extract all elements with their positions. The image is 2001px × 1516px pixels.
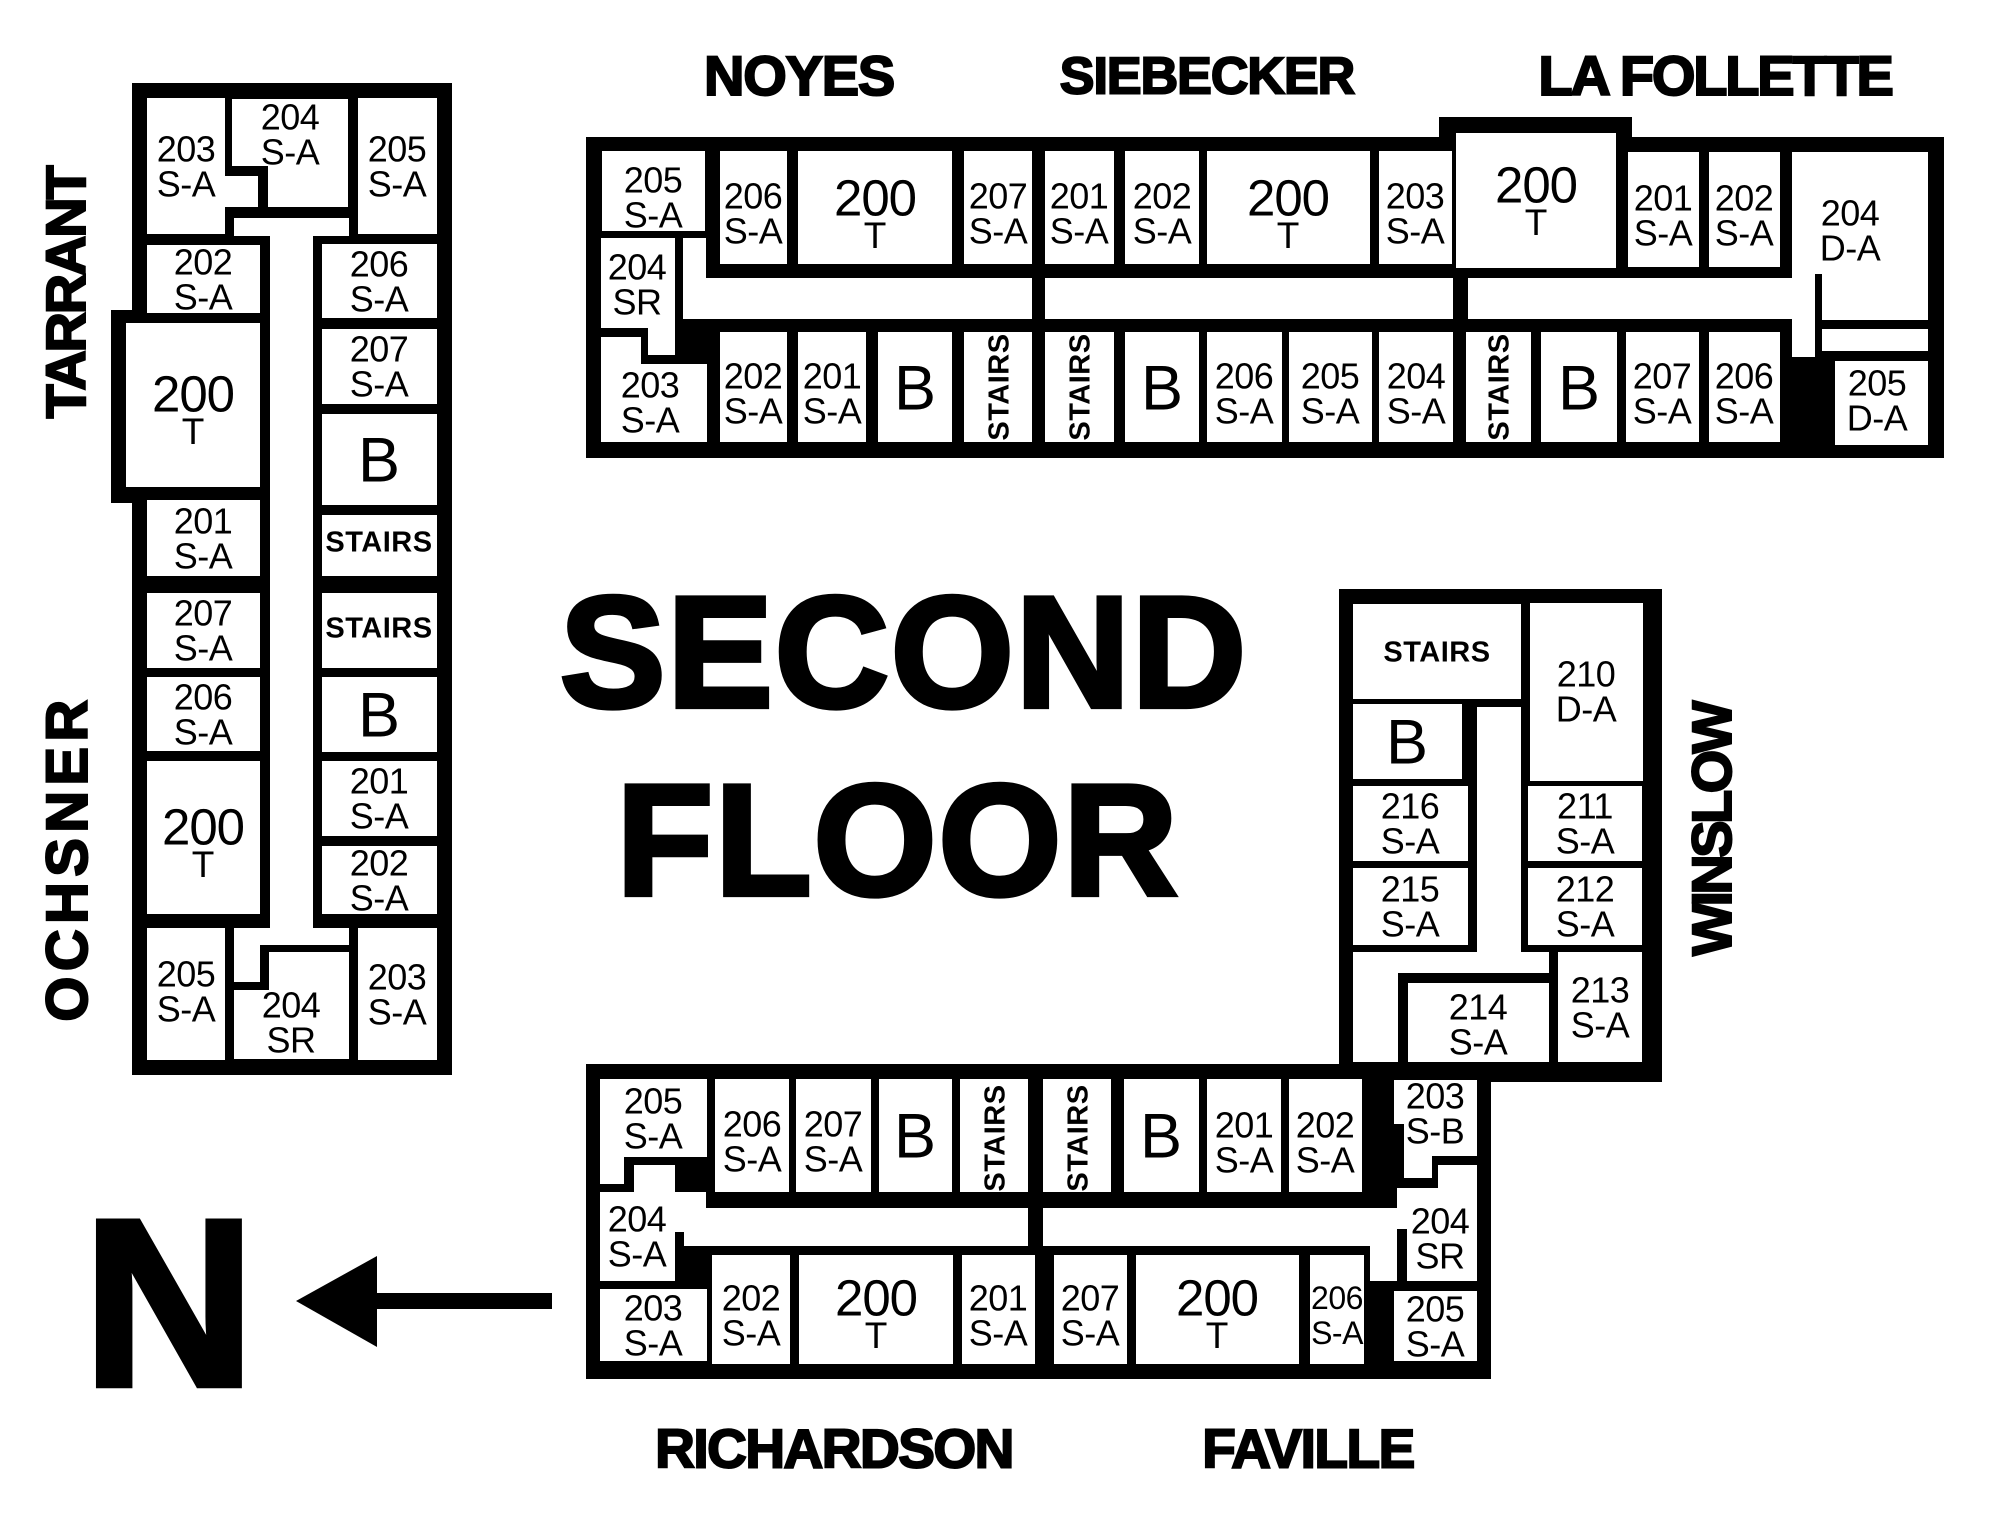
- svg-text:205S-A: 205S-A: [157, 953, 216, 1029]
- svg-text:206S-A: 206S-A: [1311, 1280, 1364, 1351]
- svg-text:RICHARDSON: RICHARDSON: [655, 1418, 1013, 1480]
- svg-text:204S-A: 204S-A: [1387, 355, 1446, 431]
- svg-text:201S-A: 201S-A: [969, 1277, 1028, 1353]
- svg-text:FAVILLE: FAVILLE: [1202, 1418, 1414, 1480]
- svg-text:205D-A: 205D-A: [1847, 362, 1908, 438]
- svg-text:203S-B: 203S-B: [1406, 1075, 1465, 1151]
- svg-text:213S-A: 213S-A: [1571, 969, 1630, 1045]
- svg-text:SIEBECKER: SIEBECKER: [1060, 48, 1355, 106]
- svg-text:205S-A: 205S-A: [368, 128, 427, 204]
- svg-text:201S-A: 201S-A: [1215, 1104, 1274, 1180]
- svg-text:207S-A: 207S-A: [1061, 1277, 1120, 1353]
- svg-text:NOYES: NOYES: [704, 44, 894, 107]
- svg-text:206S-A: 206S-A: [350, 243, 409, 319]
- svg-text:207S-A: 207S-A: [804, 1103, 863, 1179]
- svg-text:203S-A: 203S-A: [624, 1287, 683, 1363]
- svg-text:STAIRS: STAIRS: [983, 333, 1015, 440]
- svg-text:201S-A: 201S-A: [350, 760, 409, 836]
- svg-text:B: B: [1140, 1102, 1182, 1172]
- svg-text:206S-A: 206S-A: [724, 175, 783, 251]
- svg-text:202S-A: 202S-A: [1296, 1104, 1355, 1180]
- svg-text:B: B: [1386, 708, 1428, 778]
- svg-text:203S-A: 203S-A: [1386, 175, 1445, 251]
- svg-text:STAIRS: STAIRS: [325, 526, 432, 558]
- svg-text:204SR: 204SR: [1411, 1200, 1470, 1276]
- svg-text:SECOND: SECOND: [560, 565, 1248, 741]
- svg-text:B: B: [894, 1102, 936, 1172]
- svg-text:B: B: [894, 354, 936, 424]
- svg-text:205S-A: 205S-A: [624, 159, 683, 235]
- svg-text:201S-A: 201S-A: [174, 500, 233, 576]
- svg-text:TARRANT: TARRANT: [34, 165, 97, 418]
- svg-text:204SR: 204SR: [608, 246, 667, 322]
- svg-text:206S-A: 206S-A: [1215, 355, 1274, 431]
- svg-text:205S-A: 205S-A: [1301, 355, 1360, 431]
- svg-text:203S-A: 203S-A: [621, 364, 680, 440]
- svg-text:STAIRS: STAIRS: [1064, 333, 1096, 440]
- svg-text:202S-A: 202S-A: [722, 1277, 781, 1353]
- svg-text:211S-A: 211S-A: [1556, 785, 1615, 861]
- svg-text:B: B: [358, 426, 400, 496]
- svg-text:B: B: [1141, 354, 1183, 424]
- svg-text:201S-A: 201S-A: [803, 355, 862, 431]
- svg-text:204S-A: 204S-A: [608, 1198, 667, 1274]
- svg-text:205S-A: 205S-A: [1406, 1288, 1465, 1364]
- svg-text:204D-A: 204D-A: [1820, 192, 1881, 268]
- svg-text:207S-A: 207S-A: [350, 328, 409, 404]
- svg-text:B: B: [358, 681, 400, 751]
- svg-text:206S-A: 206S-A: [174, 676, 233, 752]
- svg-text:203S-A: 203S-A: [368, 956, 427, 1032]
- svg-text:STAIRS: STAIRS: [1483, 333, 1515, 440]
- svg-text:FLOOR: FLOOR: [617, 753, 1180, 929]
- svg-text:202S-A: 202S-A: [1715, 177, 1774, 253]
- svg-text:202S-A: 202S-A: [724, 355, 783, 431]
- svg-text:206S-A: 206S-A: [1715, 355, 1774, 431]
- svg-text:206S-A: 206S-A: [723, 1103, 782, 1179]
- svg-text:N: N: [83, 1171, 255, 1436]
- svg-text:WINSLOW: WINSLOW: [1680, 700, 1743, 955]
- svg-text:204SR: 204SR: [262, 984, 321, 1060]
- svg-text:212S-A: 212S-A: [1556, 868, 1615, 944]
- svg-text:214S-A: 214S-A: [1449, 986, 1508, 1062]
- svg-text:STAIRS: STAIRS: [1062, 1084, 1094, 1191]
- svg-text:210D-A: 210D-A: [1556, 653, 1617, 729]
- svg-text:215S-A: 215S-A: [1381, 868, 1440, 944]
- svg-text:207S-A: 207S-A: [1633, 355, 1692, 431]
- svg-text:202S-A: 202S-A: [174, 241, 233, 317]
- svg-text:LA FOLLETTE: LA FOLLETTE: [1538, 44, 1892, 107]
- svg-text:STAIRS: STAIRS: [325, 612, 432, 644]
- svg-text:STAIRS: STAIRS: [979, 1084, 1011, 1191]
- svg-text:205S-A: 205S-A: [624, 1080, 683, 1156]
- svg-text:201S-A: 201S-A: [1050, 175, 1109, 251]
- svg-text:207S-A: 207S-A: [174, 592, 233, 668]
- svg-text:201S-A: 201S-A: [1634, 177, 1693, 253]
- svg-text:STAIRS: STAIRS: [1383, 636, 1490, 668]
- svg-text:B: B: [1558, 354, 1600, 424]
- svg-text:203S-A: 203S-A: [157, 128, 216, 204]
- svg-text:207S-A: 207S-A: [969, 175, 1028, 251]
- svg-text:216S-A: 216S-A: [1381, 785, 1440, 861]
- svg-text:OCHSNER: OCHSNER: [35, 694, 100, 1021]
- svg-text:204S-A: 204S-A: [261, 96, 320, 172]
- svg-text:202S-A: 202S-A: [1133, 175, 1192, 251]
- svg-text:202S-A: 202S-A: [350, 842, 409, 918]
